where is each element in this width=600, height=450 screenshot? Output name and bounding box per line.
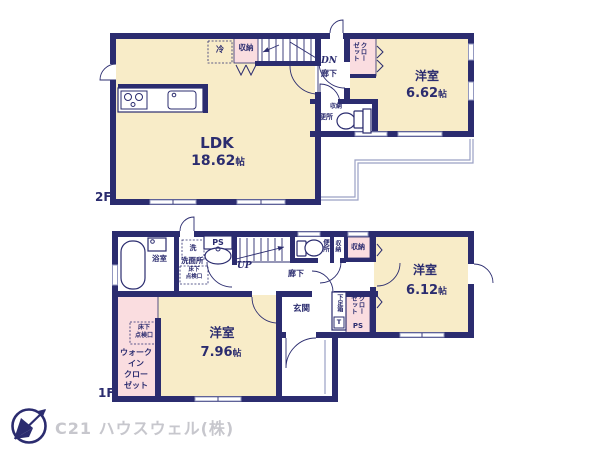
door-swing-arc	[330, 20, 343, 33]
hatch-line2: 点検口	[180, 274, 208, 281]
window	[348, 232, 368, 236]
closet-2f-label: クローゼット	[351, 42, 366, 66]
bath-label: 浴室	[152, 255, 167, 264]
bedroom-612-name: 洋室	[400, 264, 450, 278]
bedroom-796-num: 7.96	[201, 345, 233, 360]
wall-segment	[315, 92, 321, 202]
wic-line4: ゼット	[113, 380, 159, 391]
door-swing-arc	[312, 271, 333, 292]
kitchen-counter-top	[118, 88, 203, 112]
ldk-size-unit: 帖	[235, 157, 245, 168]
entrance-label: 玄関	[293, 305, 310, 315]
wic-hatch-label: 床下点検口	[130, 324, 158, 340]
ldk-size: 18.62帖	[183, 153, 253, 169]
kitchen-counter	[118, 84, 208, 113]
door-gap	[468, 264, 474, 284]
floor1-label: 1F	[98, 387, 115, 401]
door-swing-arc	[320, 262, 341, 283]
window	[469, 44, 474, 60]
stairs-1f	[233, 238, 290, 262]
wall-segment	[370, 237, 376, 262]
wall-segment	[112, 291, 252, 297]
door-gap	[344, 62, 350, 88]
balcony-outline-inner	[321, 139, 470, 197]
fridge-label: 冷	[208, 45, 232, 54]
door-swing-arc	[207, 262, 232, 287]
toilet-bowl-icon	[337, 113, 355, 129]
ps-label: PS	[204, 238, 232, 247]
balcony-outline-outer	[321, 139, 473, 200]
ldk-size-num: 18.62	[191, 153, 235, 169]
toilet-storage-2f-label: 収納	[330, 104, 342, 111]
wall-segment	[110, 199, 321, 205]
bedroom-662-unit: 帖	[438, 90, 447, 100]
door-swing-arc	[180, 217, 194, 231]
floor2-label: 2F	[95, 191, 112, 205]
wall-segment	[290, 258, 318, 263]
bedroom-796-name: 洋室	[194, 326, 250, 340]
hallway-1f-label: 廊下	[288, 269, 304, 278]
wall-segment	[255, 61, 321, 66]
storage-strip-label: 収納	[333, 240, 340, 256]
window	[469, 82, 474, 100]
company-watermark: C21 ハウスウェル(株)	[55, 420, 234, 438]
bathtub-icon	[121, 241, 145, 289]
storage-2f-label: 収納	[234, 44, 258, 53]
ldk-name: LDK	[187, 135, 247, 152]
door-gap	[330, 33, 343, 39]
wall-segment	[310, 99, 320, 104]
stairs-dn-label: DN	[321, 56, 337, 66]
washbasin-icon	[205, 248, 231, 264]
washer-pan-icon	[148, 238, 166, 251]
door-swing-arc	[474, 264, 493, 283]
wall-segment	[174, 237, 179, 292]
shoebox-t-label: T	[334, 319, 344, 326]
window	[298, 232, 320, 236]
closet-ps-label: PS	[346, 322, 370, 330]
door-gap	[110, 64, 116, 80]
wall-segment	[468, 231, 474, 338]
wall-segment	[332, 338, 338, 402]
washroom-label: 洗面所	[181, 257, 204, 266]
stairs-up-label: UP	[237, 261, 252, 271]
wall-segment	[278, 291, 312, 297]
bedroom-612-size: 6.12帖	[399, 284, 454, 299]
wall-segment	[203, 84, 208, 113]
wall-segment	[370, 287, 376, 332]
bedroom-612-num: 6.12	[406, 283, 438, 298]
bedroom-662-size: 6.62帖	[399, 87, 454, 102]
wall-segment	[316, 332, 332, 338]
washroom-hatch-label: 床下点検口	[180, 267, 208, 280]
entrance-door-arc	[286, 338, 316, 368]
storage-1f-label: 収納	[346, 243, 370, 251]
hatch-line2: 点検口	[130, 332, 158, 340]
shoebox-label: 下足箱	[335, 294, 342, 318]
wic-line1: ウォーク	[113, 347, 159, 358]
floor2-plan	[100, 20, 474, 205]
wic-line2: イン	[113, 358, 159, 369]
bedroom-662-name: 洋室	[402, 70, 452, 84]
wall-segment	[276, 291, 282, 402]
hallway-2f-label: 廊下	[321, 69, 337, 78]
bedroom-662-num: 6.62	[406, 86, 438, 101]
toilet-1f-fixture	[297, 240, 323, 256]
toilet-2f-label: 便所	[319, 113, 333, 121]
window	[398, 132, 442, 136]
compass-icon	[13, 409, 47, 443]
toilet-cabinet-icon	[363, 109, 371, 133]
door-gap	[180, 231, 194, 237]
window	[113, 265, 118, 285]
toilet-1f-label: 便所	[321, 239, 328, 257]
bedroom-796-unit: 帖	[233, 349, 242, 359]
wall-segment	[348, 74, 376, 78]
hatch-line1: 床下	[130, 324, 158, 332]
wall-segment	[110, 33, 116, 205]
wic-line3: クロー	[113, 369, 159, 380]
toilet-tank-icon	[354, 111, 363, 128]
floorplan-drawing	[0, 0, 600, 450]
wall-segment	[112, 231, 474, 237]
wic-label: ウォークインクローゼット	[113, 347, 159, 391]
wall-segment	[310, 131, 474, 137]
washer-label: 洗	[182, 244, 204, 252]
wall-segment	[344, 258, 372, 262]
floorplan-canvas: 冷 収納 DN 廊下 クローゼット 収納 便所 LDK 18.62帖 洋室 6.…	[0, 0, 600, 450]
stair-direction-line	[236, 247, 284, 259]
wall-segment	[110, 33, 474, 39]
closet-1f-label: クローゼット	[349, 295, 364, 319]
bedroom-796-size: 7.96帖	[190, 346, 252, 361]
bedroom-612-unit: 帖	[438, 287, 447, 297]
